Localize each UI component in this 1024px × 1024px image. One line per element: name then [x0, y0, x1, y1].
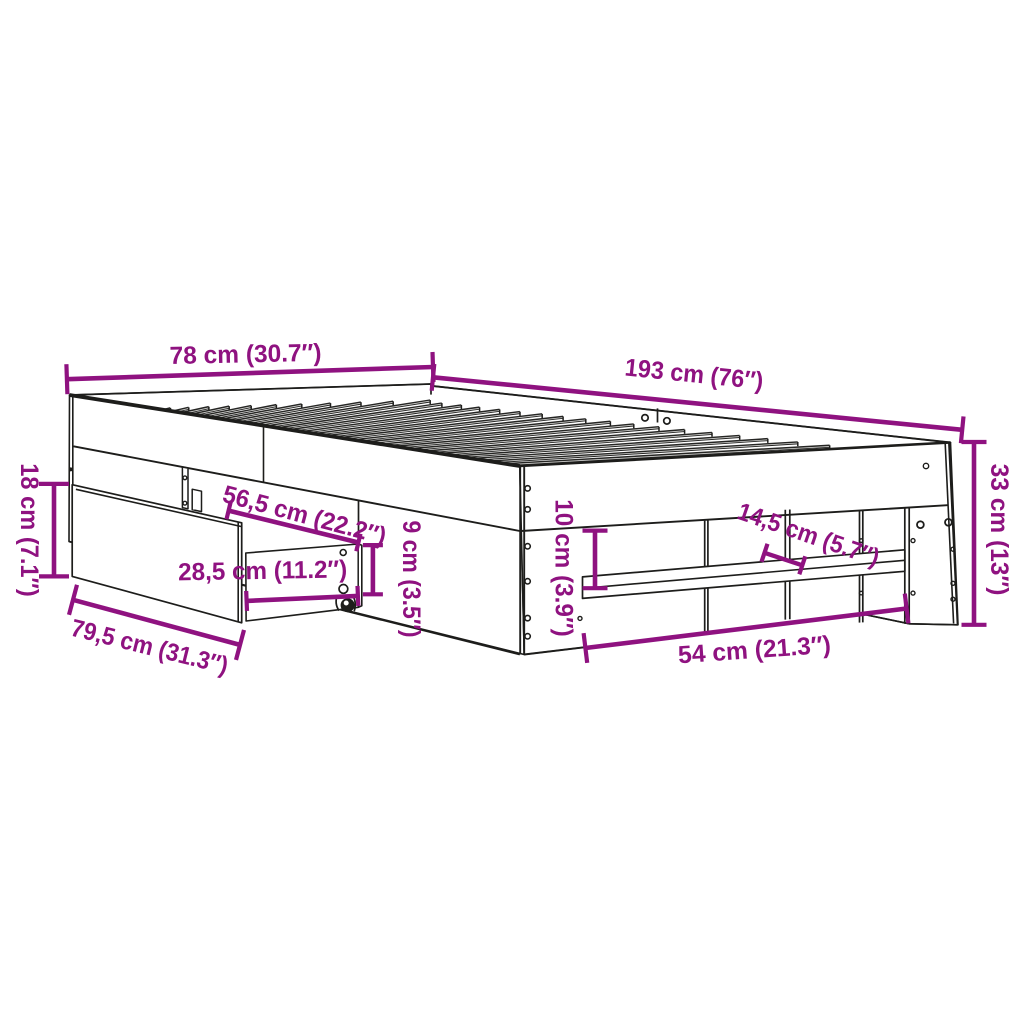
- svg-text:28,5 cm (11.2″): 28,5 cm (11.2″): [178, 556, 347, 586]
- svg-text:33 cm (13″): 33 cm (13″): [985, 464, 1012, 596]
- svg-text:9 cm (3.5″): 9 cm (3.5″): [397, 521, 424, 638]
- svg-text:18 cm (7.1″): 18 cm (7.1″): [15, 463, 42, 597]
- svg-text:10 cm (3.9″): 10 cm (3.9″): [549, 499, 576, 637]
- svg-text:78 cm (30.7″): 78 cm (30.7″): [169, 340, 322, 370]
